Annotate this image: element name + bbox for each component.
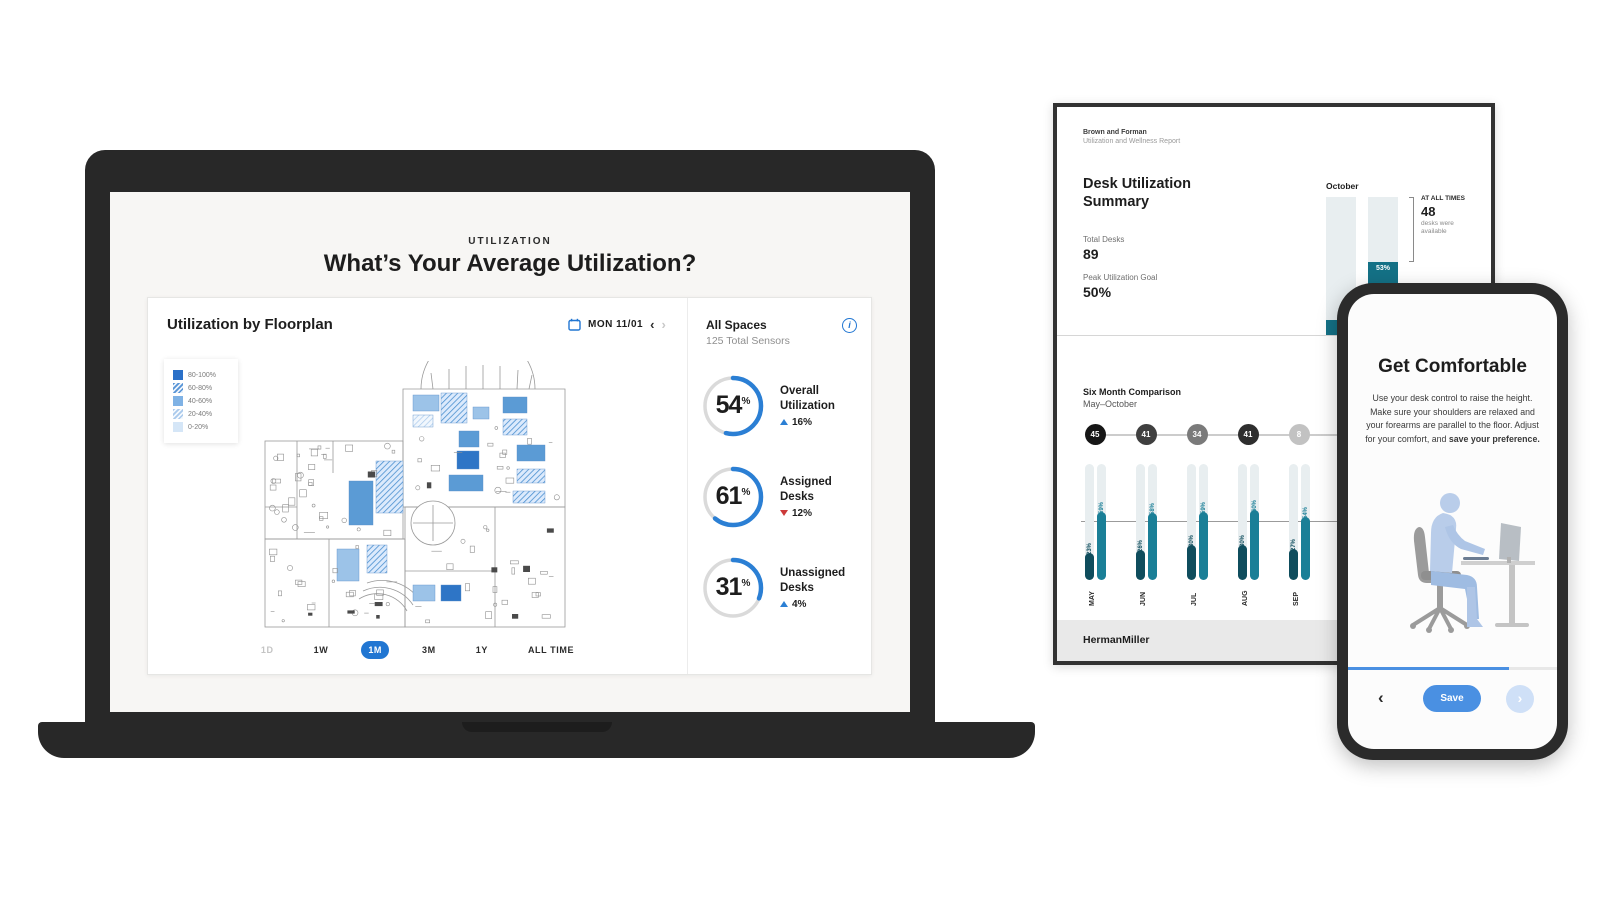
stat-info: UnassignedDesks4% (780, 566, 845, 610)
phone-controls: ‹ Save › (1348, 678, 1557, 722)
bar-percent-label: 26% (1138, 540, 1144, 552)
donut-value: 31% (701, 573, 765, 602)
time-range-1w[interactable]: 1W (307, 641, 336, 659)
stat-info: OverallUtilization16% (780, 384, 835, 428)
utilization-card: Utilization by Floorplan MON 11/01 ‹ › 8… (147, 297, 872, 675)
bar-fill-teal (1148, 513, 1157, 580)
bar-track (1289, 464, 1298, 580)
october-chart-title: October (1326, 181, 1359, 191)
stats-list: 54%OverallUtilization16%61%AssignedDesks… (701, 374, 873, 647)
callout-eyebrow: AT ALL TIMES (1421, 195, 1473, 202)
month-count-badge: 8 (1289, 424, 1310, 445)
time-range-1d[interactable]: 1D (254, 641, 281, 659)
time-range-selector: 1D1W1M3M1YALL TIME (148, 641, 687, 659)
floorplan-map[interactable] (263, 361, 571, 629)
legend-swatch (173, 370, 183, 380)
legend-label: 40-60% (188, 398, 212, 405)
month-count-badge: 41 (1238, 424, 1259, 445)
month-axis-label: JUL (1191, 593, 1198, 606)
legend-label: 80-100% (188, 372, 216, 379)
october-bar-label: 53% (1368, 265, 1398, 272)
report-summary-title: Desk Utilization Summary (1083, 175, 1223, 211)
time-range-1y[interactable]: 1Y (469, 641, 495, 659)
bar-percent-label: 58% (1150, 503, 1156, 515)
bar-percent-label: 30% (1189, 535, 1195, 547)
card-title: Utilization by Floorplan (167, 316, 333, 333)
stat-unassigned-desks: 31%UnassignedDesks4% (701, 556, 873, 620)
bar-fill-dark (1136, 550, 1145, 580)
save-button[interactable]: Save (1423, 685, 1481, 712)
time-range-3m[interactable]: 3M (415, 641, 443, 659)
trend-up-icon (780, 419, 788, 425)
date-next-button[interactable]: › (661, 320, 665, 330)
callout-caption: desks were available (1421, 220, 1473, 237)
bar-percent-label: 27% (1291, 539, 1297, 551)
month-axis-label: JUN (1140, 592, 1147, 606)
bar-fill-dark (1187, 545, 1196, 580)
legend-item: 0-20% (173, 422, 238, 432)
bar-percent-label: 54% (1303, 507, 1309, 519)
bar-track (1187, 464, 1196, 580)
legend-item: 60-80% (173, 383, 238, 393)
bar-track (1136, 464, 1145, 580)
metric-label: Total Desks (1083, 235, 1124, 244)
month-axis-label: MAY (1089, 591, 1096, 606)
bar-track (1097, 464, 1106, 580)
legend-swatch (173, 422, 183, 432)
bar-percent-label: 23% (1087, 543, 1093, 555)
info-icon[interactable]: i (842, 318, 857, 333)
legend-item: 80-100% (173, 370, 238, 380)
trend-down-icon (780, 510, 788, 516)
legend-item: 20-40% (173, 409, 238, 419)
phone-body: Use your desk control to raise the heigh… (1361, 392, 1544, 447)
report-company: Brown and Forman (1083, 129, 1147, 136)
metric-value: 89 (1083, 246, 1124, 262)
brand-logo: HermanMiller (1083, 634, 1150, 646)
bar-fill-teal (1097, 512, 1106, 580)
bar-fill-teal (1301, 517, 1310, 580)
panel-subtitle: 125 Total Sensors (706, 335, 790, 347)
bar-percent-label: 60% (1252, 500, 1258, 512)
change-value: 4% (792, 599, 806, 610)
page-title: What’s Your Average Utilization? (110, 250, 910, 278)
month-axis-label: AUG (1242, 590, 1249, 606)
legend-swatch (173, 409, 183, 419)
phone-title: Get Comfortable (1348, 356, 1557, 378)
progress-fill (1348, 667, 1509, 670)
donut-value: 61% (701, 482, 765, 511)
stage: UTILIZATION What’s Your Average Utilizat… (0, 0, 1600, 900)
time-range-all-time[interactable]: ALL TIME (521, 641, 581, 659)
legend-item: 40-60% (173, 396, 238, 406)
date-prev-button[interactable]: ‹ (650, 320, 654, 330)
bar-fill-dark (1238, 545, 1247, 580)
bar-fill-teal (1250, 510, 1259, 580)
phone-body-bold: save your preference. (1449, 434, 1540, 444)
legend-label: 20-40% (188, 411, 212, 418)
bar-track (1250, 464, 1259, 580)
donut-chart: 31% (701, 556, 765, 620)
phone-screen: Get Comfortable Use your desk control to… (1348, 294, 1557, 749)
floorplan-drawing (263, 361, 571, 629)
legend-swatch (173, 383, 183, 393)
metric-value: 50% (1083, 284, 1157, 300)
bar-percent-label: 59% (1099, 502, 1105, 514)
six-month-title: Six Month Comparison (1083, 387, 1181, 397)
callout-value: 48 (1421, 204, 1473, 219)
metric-label: Peak Utilization Goal (1083, 273, 1157, 282)
date-picker[interactable]: MON 11/01 ‹ › (568, 318, 680, 331)
bar-fill-dark (1289, 549, 1298, 580)
stat-overall-utilization: 54%OverallUtilization16% (701, 374, 873, 438)
change-value: 16% (792, 417, 812, 428)
stat-change: 12% (780, 508, 832, 519)
metric-total-desks: Total Desks 89 (1083, 235, 1124, 262)
stat-label: OverallUtilization (780, 384, 835, 413)
legend-swatch (173, 396, 183, 406)
goal-line (1081, 521, 1351, 522)
bar-fill-dark (1085, 553, 1094, 580)
onboarding-progress-bar (1348, 667, 1557, 670)
back-button[interactable]: ‹ (1378, 688, 1384, 708)
metric-peak-goal: Peak Utilization Goal 50% (1083, 273, 1157, 300)
six-month-chart: 4523%59%MAY4126%58%JUN3430%59%JUL4130%60… (1057, 424, 1367, 614)
stats-panel: All Spaces 125 Total Sensors i 54%Overal… (687, 298, 873, 676)
legend-label: 0-20% (188, 424, 208, 431)
stat-assigned-desks: 61%AssignedDesks12% (701, 465, 873, 529)
october-bracket (1409, 197, 1414, 262)
report-name: Utilization and Wellness Report (1083, 138, 1180, 145)
laptop-base (38, 722, 1035, 758)
bar-track (1148, 464, 1157, 580)
october-callout: AT ALL TIMES 48 desks were available (1421, 195, 1473, 237)
change-value: 12% (792, 508, 812, 519)
bar-fill-teal (1199, 512, 1208, 580)
donut-chart: 61% (701, 465, 765, 529)
legend-label: 60-80% (188, 385, 212, 392)
ergonomic-illustration (1363, 462, 1543, 642)
stat-change: 4% (780, 599, 845, 610)
bar-percent-label: 30% (1240, 535, 1246, 547)
laptop-screen: UTILIZATION What’s Your Average Utilizat… (110, 192, 910, 712)
stat-label: UnassignedDesks (780, 566, 845, 595)
trend-up-icon (780, 601, 788, 607)
panel-title: All Spaces (706, 318, 767, 332)
time-range-1m[interactable]: 1M (361, 641, 389, 659)
person-at-desk-illustration (1363, 462, 1543, 642)
next-button[interactable]: › (1506, 685, 1534, 713)
bar-percent-label: 59% (1201, 502, 1207, 514)
stat-info: AssignedDesks12% (780, 475, 832, 519)
bar-track (1085, 464, 1094, 580)
bar-track (1238, 464, 1247, 580)
donut-value: 54% (701, 391, 765, 420)
bar-track (1301, 464, 1310, 580)
date-label: MON 11/01 (588, 319, 643, 330)
eyebrow-label: UTILIZATION (110, 236, 910, 247)
month-count-badge: 41 (1136, 424, 1157, 445)
month-count-badge: 34 (1187, 424, 1208, 445)
donut-chart: 54% (701, 374, 765, 438)
phone-frame: Get Comfortable Use your desk control to… (1337, 283, 1568, 760)
stat-change: 16% (780, 417, 835, 428)
six-month-subtitle: May–October (1083, 399, 1137, 409)
stat-label: AssignedDesks (780, 475, 832, 504)
laptop-frame: UTILIZATION What’s Your Average Utilizat… (85, 150, 935, 722)
month-axis-label: SEP (1293, 592, 1300, 606)
calendar-icon[interactable] (568, 318, 581, 331)
utilization-legend: 80-100%60-80%40-60%20-40%0-20% (164, 359, 238, 443)
bar-track (1199, 464, 1208, 580)
month-count-badge: 45 (1085, 424, 1106, 445)
